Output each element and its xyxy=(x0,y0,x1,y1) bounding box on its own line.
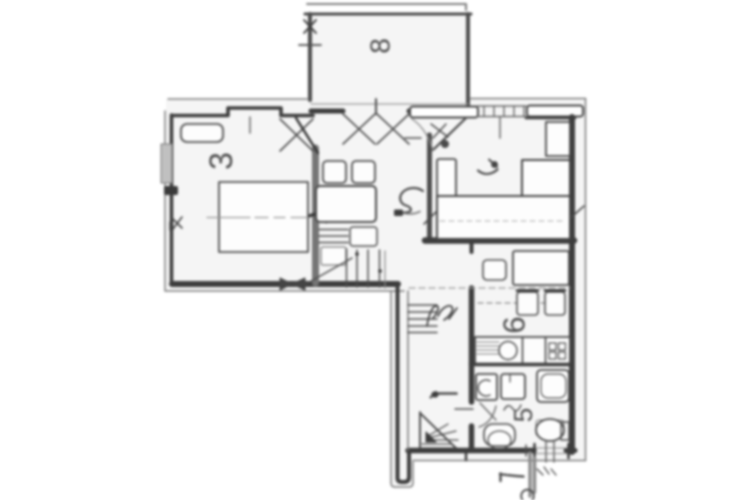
svg-text:5: 5 xyxy=(508,408,538,422)
svg-text:8: 8 xyxy=(365,38,396,54)
svg-text:6: 6 xyxy=(497,316,532,333)
svg-text:3: 3 xyxy=(203,152,239,170)
